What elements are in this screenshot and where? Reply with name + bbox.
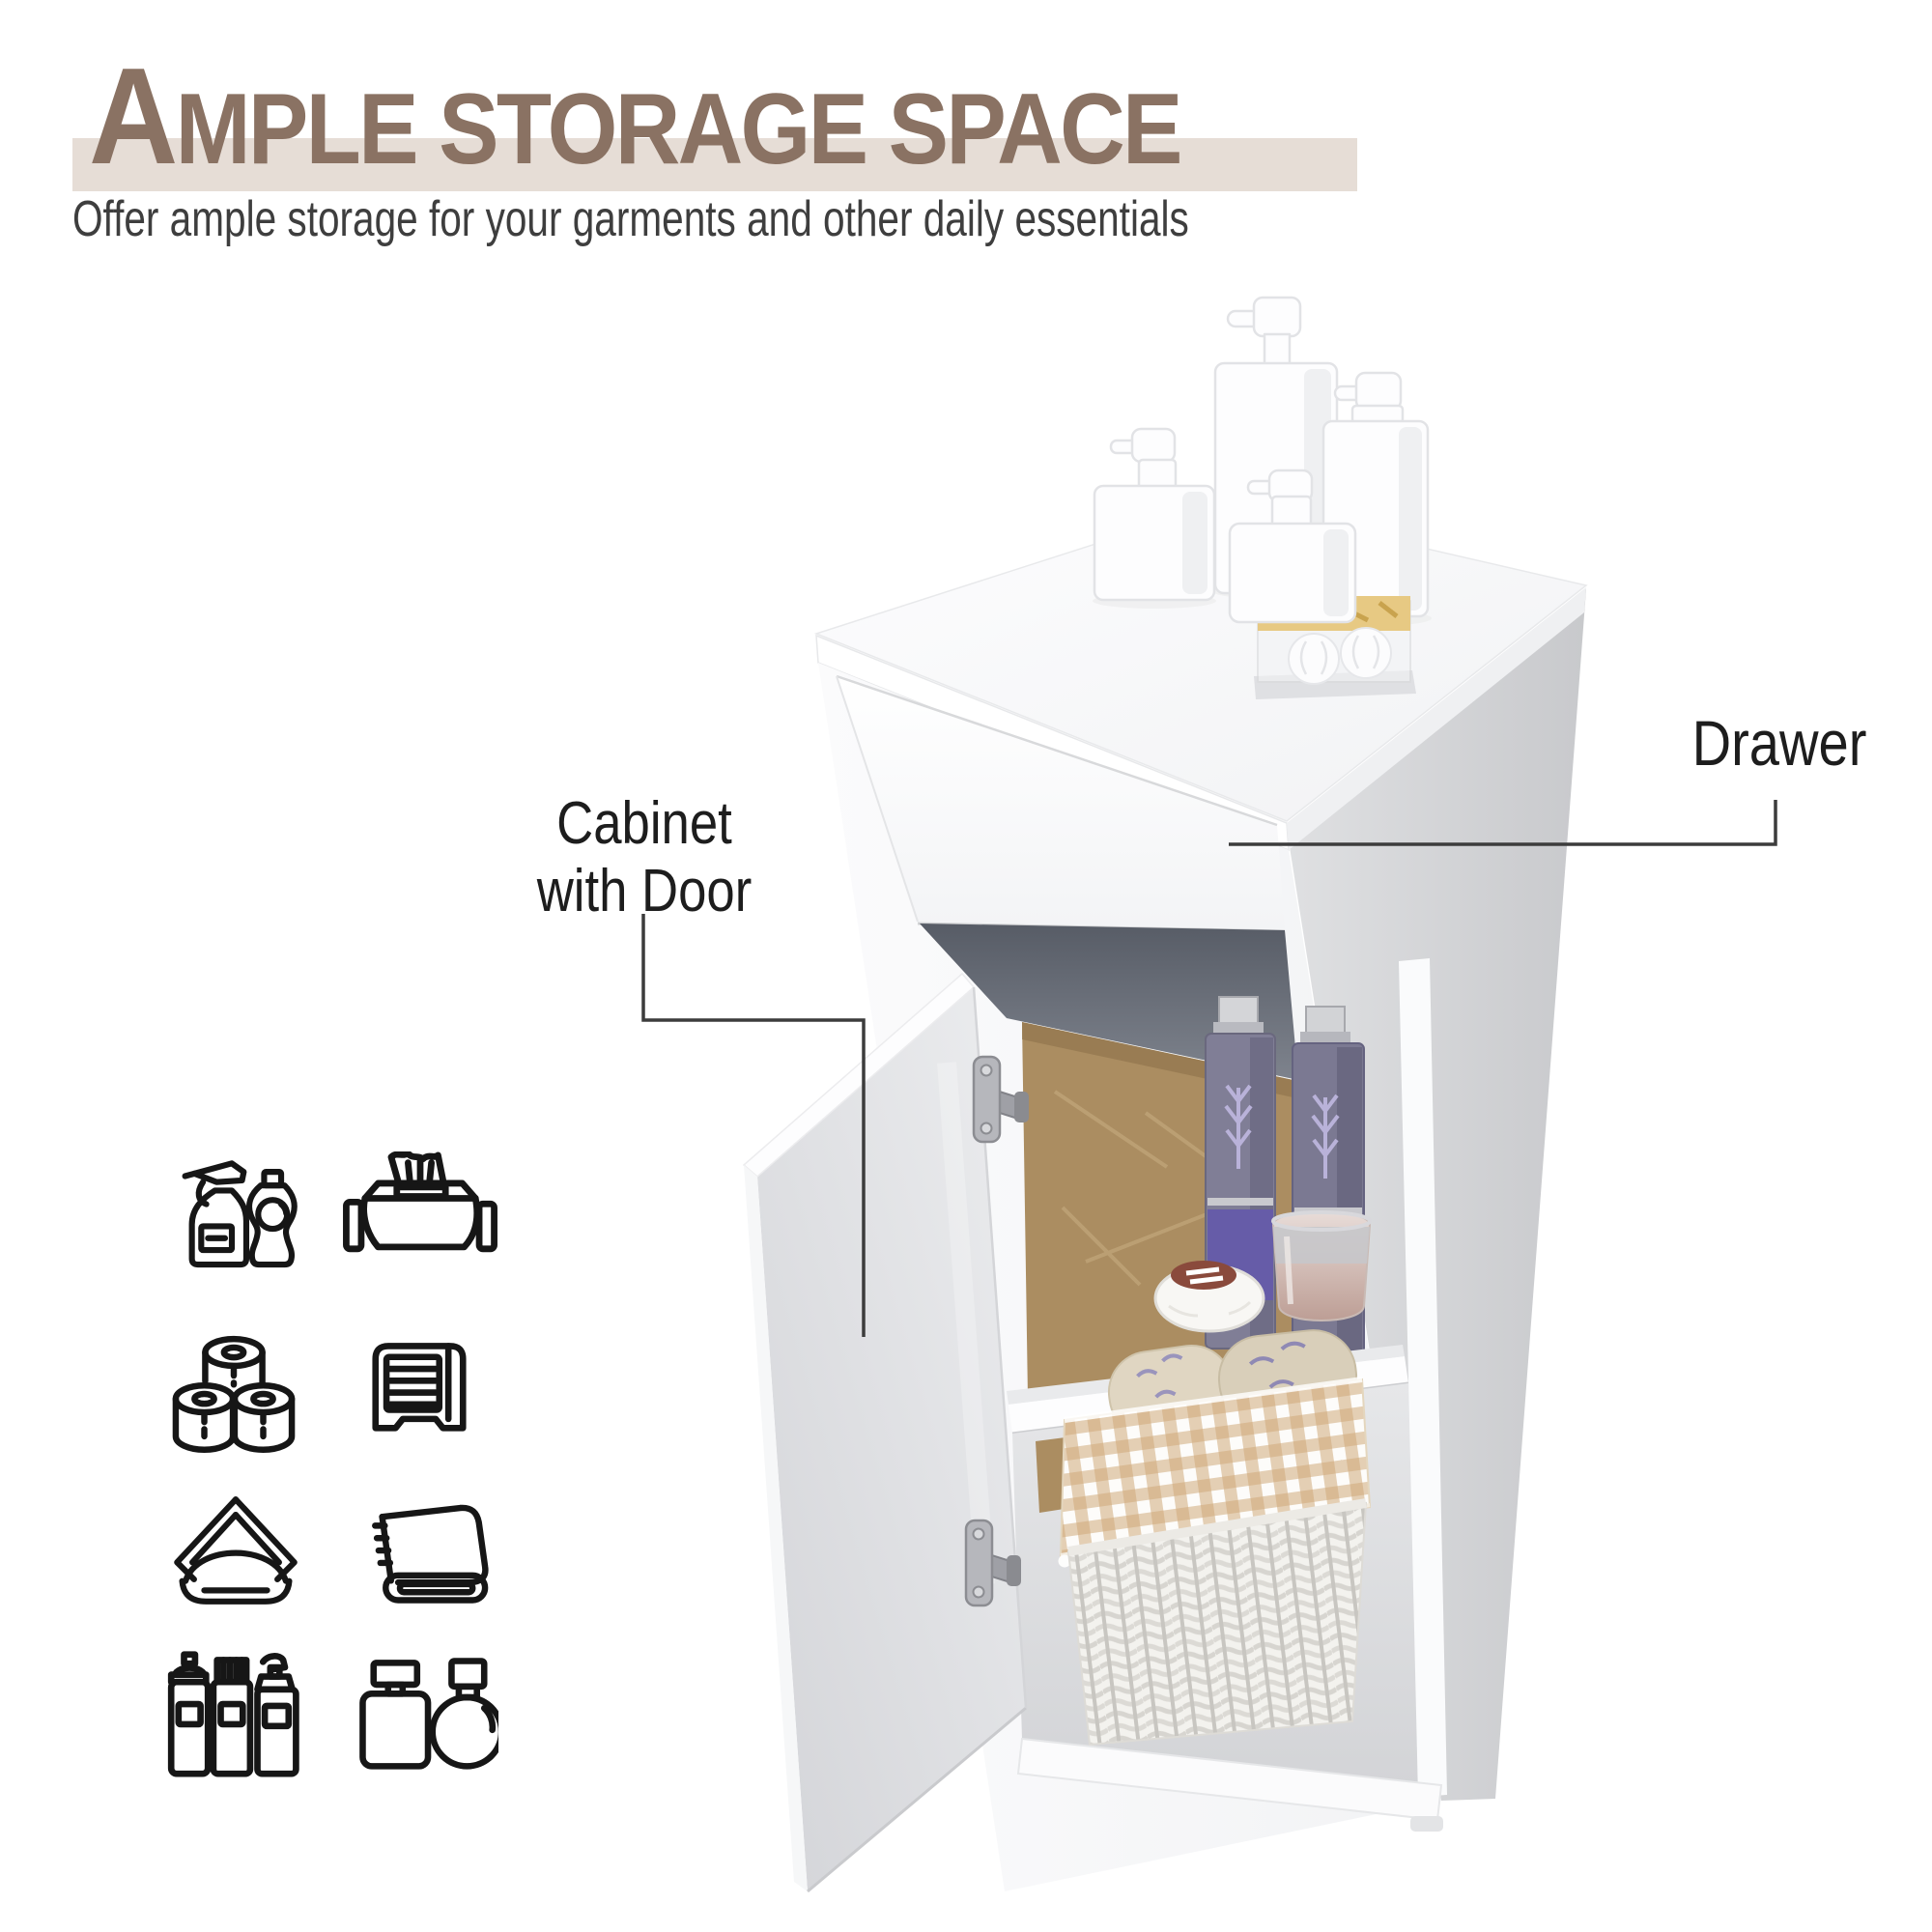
pump-bottle-left bbox=[1094, 429, 1214, 600]
glass-cup bbox=[1273, 1212, 1370, 1321]
product-infographic: { "header": { "title_drop_cap": "A", "ti… bbox=[0, 0, 1932, 1932]
cabinet-foot bbox=[1410, 1816, 1443, 1832]
cabinet-illustration bbox=[0, 0, 1932, 1932]
